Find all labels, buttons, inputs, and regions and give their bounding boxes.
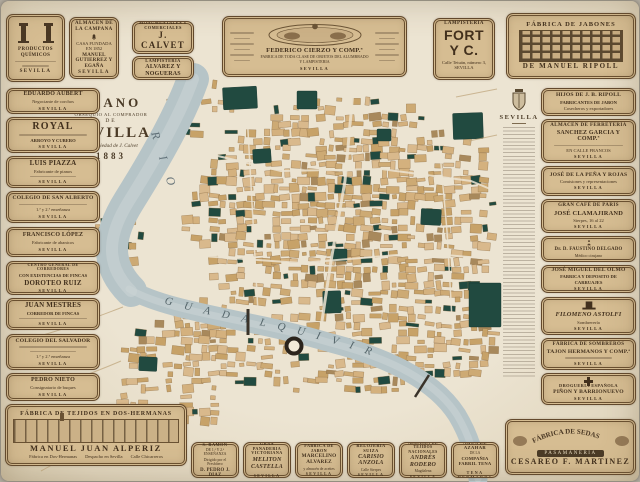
text-line	[230, 32, 255, 34]
ad-banner: PASAMANERIA	[537, 450, 603, 457]
ad-pedro-nieto: PEDRO NIETO Consignatario de buques SEVI…	[6, 373, 100, 401]
ad-subheader: FABRICANTES DE JABON	[560, 100, 617, 106]
text-line	[375, 43, 400, 45]
cherub-ribbon-icon: FÁBRICA DE SEDAS	[511, 427, 631, 449]
ad-city: SEVILLA	[574, 224, 603, 229]
ad-name: DE MANUEL RIPOLL	[523, 63, 619, 71]
svg-text:FÁBRICA DE SEDAS: FÁBRICA DE SEDAS	[530, 428, 600, 445]
ad-line: DE LA	[470, 451, 480, 455]
ad-foot-right: Calle Chicarreros	[131, 454, 163, 460]
ad-colegio-salvador: COLEGIO DEL SALVADOR 1.ª y 2.ª enseñanza…	[6, 334, 100, 370]
ad-line: CASA FUNDADA EN 1852	[74, 41, 114, 52]
ad-city: SEVILLA	[38, 144, 67, 149]
ad-header: CENTRO GENERAL DE CORREDORES	[11, 263, 95, 272]
ad-doroteo-ruiz: CENTRO GENERAL DE CORREDORES CON EXISTEN…	[6, 261, 100, 295]
text-line	[554, 145, 624, 146]
ad-productos-quimicos: PRODUCTOS QUÍMICOS SEVILLA	[6, 14, 65, 82]
ad-name: CESAREO F. MARTINEZ	[511, 458, 630, 467]
cross-icon	[584, 377, 593, 382]
ad-drogueria-espanola: DROGUERIA ESPAÑOLA PIÑON Y BARRIONUEVO S…	[541, 373, 636, 405]
ad-fabrica-jabones-ripoll: FÁBRICA DE JABONES DE MANUEL RIPOLL	[506, 13, 636, 79]
ad-header: AGUA DE AZAHAR	[456, 442, 494, 450]
ad-almacen-campana: ALMACEN DE LA CAMPANA CASA FUNDADA EN 18…	[69, 17, 119, 79]
text-line	[30, 351, 76, 353]
ad-name: FILOMENO ASTOLFI	[556, 311, 622, 318]
ad-city: SEVILLA	[38, 321, 67, 326]
ad-name: PEDRO NIETO	[31, 377, 75, 384]
ad-header: GRAN CAFÉ DE PARIS	[558, 203, 619, 209]
text-line	[565, 357, 612, 359]
ad-city: SEVILLA	[574, 396, 603, 401]
person-portrait-icon	[584, 240, 594, 246]
ad-name: LUIS PIAZZA	[30, 160, 77, 168]
ad-name: TAJON HERMANOS Y COMP.ª	[547, 349, 631, 355]
text-line	[19, 204, 88, 206]
ad-line: Calle Tetuán, número 3, SEVILLA	[438, 60, 490, 71]
bullring	[287, 339, 302, 354]
ad-name: JOSÉ DE LA PEÑA Y ROJAS	[550, 172, 628, 178]
text-line	[19, 318, 88, 319]
ad-center: FEDERICO CIERZO Y COMP.ª FABRICA DE TODA…	[260, 22, 369, 71]
ad-city: SEVILLA	[306, 472, 332, 476]
coat-of-arms-icon	[511, 89, 527, 111]
soap-factory-building-icon	[519, 30, 623, 62]
ad-city: SEVILLA	[38, 106, 67, 111]
ad-line: Fabricante de abanicos	[32, 240, 74, 246]
ad-side-list	[372, 20, 402, 73]
ad-name: Dr. D. FAUSTINO DELGADO	[555, 247, 623, 252]
top-hat-icon	[581, 301, 597, 310]
ad-header: FÁBRICA DE TEJIDOS EN DOS-HERMANAS	[20, 411, 172, 418]
text-line	[15, 61, 55, 63]
ad-foot-center: Despacho en Sevilla	[85, 454, 123, 460]
ad-city: SEVILLA	[574, 185, 603, 190]
ad-line: Sierpes, 16 al 22	[573, 218, 604, 224]
text-line	[375, 32, 400, 34]
ad-line: EN CALLE FRANCOS	[566, 148, 610, 154]
ad-header: FÁBRICA DE SOMBREROS	[553, 342, 625, 348]
ad-name: MANUEL JUAN ALPERIZ	[30, 444, 162, 453]
ad-name: D. PEDRO J. DIAZ	[196, 468, 234, 478]
description-text-lines	[503, 127, 535, 379]
ad-name: JOSÉ CLAMAJIRAND	[554, 210, 623, 217]
ad-city: SEVILLA	[38, 392, 67, 397]
ad-name: HIJOS DE J. B. RIPOLL	[556, 92, 621, 98]
ad-name: ROYAL	[32, 121, 73, 132]
ad-city: SEVILLA	[38, 361, 67, 366]
ad-name: MANUEL GUTIERREZ Y EGAÑA	[74, 53, 114, 70]
ad-tejidos-dos-hermanas: FÁBRICA DE TEJIDOS EN DOS-HERMANAS MANUE…	[5, 404, 187, 466]
text-line	[379, 49, 396, 51]
ad-line: Sombrerería	[577, 320, 600, 326]
ad-city: SEVILLA	[38, 214, 67, 219]
monument-columns-icon	[16, 22, 56, 46]
ad-name: FORT Y C.	[438, 28, 490, 59]
ad-foot-left: Fábrica en Dos-Hermanas	[29, 454, 77, 460]
ad-line: 1.ª y 2.ª enseñanza	[36, 207, 70, 213]
ad-city: SEVILLA	[574, 326, 603, 331]
ad-header: ALMACEN DE LA CAMPANA	[74, 21, 114, 33]
ad-line2: Dirigido por el Presbítero	[196, 458, 234, 467]
ad-line: Magdalena	[415, 469, 432, 474]
ad-arc-title: FÁBRICA DE SEDAS	[530, 428, 600, 445]
text-line	[230, 43, 255, 45]
ad-luis-piazza: LUIS PIAZZA Fabricante de pianos SEVILLA	[6, 156, 100, 188]
ad-line: Calle Sierpes	[361, 468, 381, 473]
ad-marcelino-alvarez: FABRICA DE JABON MARCELINO ALVAREZ y alm…	[295, 442, 343, 478]
sevilla-description-column: SEVILLA	[501, 89, 537, 433]
ad-foot: TENA HERMANOS	[456, 470, 494, 478]
ad-subheader: FABRICA Y DEPOSITO DE CARRUAJES	[546, 274, 631, 285]
ad-name: COLEGIO DEL SALVADOR	[16, 338, 91, 344]
ad-subheader: CON EXISTENCIAS DE FINCAS	[19, 273, 87, 279]
ad-federico-cierzo: FEDERICO CIERZO Y COMP.ª FABRICA DE TODA…	[222, 16, 407, 77]
ad-name: EDUARDO AUBERT	[23, 91, 82, 98]
ad-name: CARISIO ANZOLA	[352, 454, 390, 467]
ad-name: MELITON CASTELLA	[248, 457, 286, 470]
ad-miguel-del-olmo: JOSÉ MIGUEL DEL OLMO FABRICA Y DEPOSITO …	[541, 265, 636, 293]
ad-hijos-ripoll: HIJOS DE J. B. RIPOLL FABRICANTES DE JAB…	[541, 88, 636, 116]
ad-colegio-san-ramon: COLEGIO DE S. RAMON DE 1.ª Y 2.ª ENSEÑAN…	[191, 442, 239, 478]
text-line	[379, 38, 396, 40]
ad-header: ALMACEN DE TEJIDOS NACIONALES	[404, 442, 442, 454]
ad-relojeria-anzola: RELOJERIA SUIZA CARISIO ANZOLA Calle Sie…	[347, 442, 395, 478]
ad-j-calvet: PLANOS MONUMENTALES Y COMERCIALES J. CAL…	[132, 21, 194, 54]
ad-city: SEVILLA	[148, 78, 177, 80]
ad-side-list	[227, 20, 257, 73]
ad-tajon-hermanos: FÁBRICA DE SOMBREROS TAJON HERMANOS Y CO…	[541, 338, 636, 370]
ad-cafe-paris: GRAN CAFÉ DE PARIS JOSÉ CLAMAJIRAND Sier…	[541, 199, 636, 233]
ad-line: ARROYO Y CUBERO	[30, 138, 75, 144]
ad-line: Médico cirujano	[575, 253, 603, 258]
ad-city: SEVILLA	[20, 69, 52, 74]
ad-line: Cosecheros y exportadores	[564, 106, 614, 112]
ad-city: SEVILLA	[300, 66, 329, 71]
ad-name: JUAN MESTRES	[25, 302, 81, 310]
ad-city: SEVILLA	[38, 247, 67, 252]
ad-name: COLEGIO DE SAN ALBERTO	[12, 195, 93, 201]
ad-line: FABRICA DE TODA CLASE DE OBJETOS DEL ALU…	[260, 55, 369, 65]
text-line	[19, 134, 88, 136]
poster-sheet: RIO GUADALQUIVIR PLANO OBSEQUIO AL COMPR…	[1, 1, 639, 481]
divider	[512, 123, 526, 124]
ad-line: 1.ª y 2.ª enseñanza	[36, 354, 70, 360]
ad-subheader: CORREDOR DE FINCAS	[27, 311, 80, 317]
ad-doctor-delgado: Dr. D. FAUSTINO DELGADO Médico cirujano	[541, 236, 636, 262]
ad-name: PIÑON Y BARRIONUEVO	[553, 389, 624, 395]
ad-header: COLEGIO DE S. RAMON	[196, 442, 234, 447]
ad-line: Negociante de corchos	[32, 99, 74, 105]
ad-name: ALVAREZ Y NOGUERAS	[137, 64, 189, 77]
ad-header: FABRICA DE JABON	[300, 444, 338, 454]
ad-colegio-san-alberto: COLEGIO DE SAN ALBERTO 1.ª y 2.ª enseñan…	[6, 191, 100, 223]
ad-name: ANDRÉS RODERO	[404, 455, 442, 468]
ad-line: Fabricante de pianos	[34, 169, 72, 175]
text-line	[234, 38, 251, 40]
ad-city: SEVILLA	[254, 474, 280, 478]
text-line	[230, 54, 255, 56]
ad-city: SEVILLA	[78, 70, 110, 75]
ad-header: TALLER DE LAMPISTERIA	[137, 56, 189, 63]
ad-eduardo-aubert: EDUARDO AUBERT Negociante de corchos SEV…	[6, 88, 100, 114]
ad-header: PRODUCTOS QUÍMICOS	[11, 47, 60, 59]
ad-city: SEVILLA	[38, 288, 67, 293]
ad-panaderia-castella: GRAN PANADERIA VICTORIANA MELITON CASTEL…	[243, 442, 291, 478]
ad-name: J. CALVET	[137, 31, 189, 51]
ad-city: SEVILLA	[410, 475, 436, 478]
ad-header: RELOJERIA SUIZA	[352, 443, 390, 453]
ad-francisco-lopez: FRANCISCO LÓPEZ Fabricante de abanicos S…	[6, 227, 100, 257]
ad-header: PLANOS MONUMENTALES Y COMERCIALES	[137, 21, 189, 30]
ad-pena-rojas: JOSÉ DE LA PEÑA Y ROJAS Comisiones y rep…	[541, 166, 636, 196]
ad-city: SEVILLA	[574, 154, 603, 159]
text-line	[234, 49, 251, 51]
ad-line: DE 1.ª Y 2.ª ENSEÑANZA	[196, 448, 234, 457]
ad-fort-y-c: LAMPISTERIA FORT Y C. Calle Tetuán, núme…	[433, 18, 495, 80]
text-line	[22, 65, 49, 67]
text-line	[19, 346, 88, 348]
ad-name: SANCHEZ GARCIA Y COMP.ª	[546, 130, 631, 143]
ad-name: JOSÉ MIGUEL DEL OLMO	[551, 267, 625, 273]
text-line	[379, 60, 396, 62]
ad-name: FRANCISCO LÓPEZ	[23, 232, 84, 239]
ad-name: COMPAÑIA FABRIL TENA	[456, 456, 494, 466]
text-line	[375, 54, 400, 56]
ad-city: SEVILLA	[38, 179, 67, 184]
ad-header: FÁBRICA DE JABONES	[526, 21, 616, 28]
ornate-cartouche-icon	[265, 22, 365, 46]
ad-line: Comisiones y representaciones	[560, 179, 617, 185]
antique-map-photo: RIO GUADALQUIVIR PLANO OBSEQUIO AL COMPR…	[0, 0, 640, 482]
ad-andres-rodero: ALMACEN DE TEJIDOS NACIONALES ANDRÉS ROD…	[399, 442, 447, 478]
ad-cesareo-martinez: FÁBRICA DE SEDAS PASAMANERIA CESAREO F. …	[505, 419, 636, 475]
ad-line: Consignatario de buques	[30, 385, 75, 391]
ad-sanchez-garcia: ALMACEN DE FERRETERIA SANCHEZ GARCIA Y C…	[541, 119, 636, 163]
ad-juan-mestres: JUAN MESTRES CORREDOR DE FINCAS SEVILLA	[6, 298, 100, 330]
ad-name: MARCELINO ALVAREZ	[300, 454, 338, 465]
ad-city: SEVILLA	[574, 286, 603, 291]
ad-agua-de-azahar: AGUA DE AZAHAR DE LA COMPAÑIA FABRIL TEN…	[451, 442, 499, 478]
ad-city: SEVILLA	[358, 473, 384, 477]
text-line	[30, 176, 76, 177]
ad-city: SEVILLA	[574, 361, 603, 366]
ad-royal: ROYAL ARROYO Y CUBERO SEVILLA	[6, 117, 100, 153]
ad-header: GRAN PANADERIA VICTORIANA	[248, 442, 286, 456]
ad-name: DOROTEO RUIZ	[24, 280, 81, 288]
strip-heading: SEVILLA	[499, 114, 538, 121]
ad-astolfi-sombrereria: FILOMENO ASTOLFI Sombrerería SEVILLA	[541, 297, 636, 335]
ad-name: FEDERICO CIERZO Y COMP.ª	[266, 47, 363, 54]
bell-icon	[86, 34, 102, 40]
textile-factory-icon	[13, 419, 179, 443]
ad-header: ALMACEN DE FERRETERIA	[550, 123, 626, 129]
text-line	[234, 60, 251, 62]
ad-line: y almacén de aceites	[303, 467, 334, 472]
ad-alvarez-nogueras: TALLER DE LAMPISTERIA ALVAREZ Y NOGUERAS…	[132, 56, 194, 80]
